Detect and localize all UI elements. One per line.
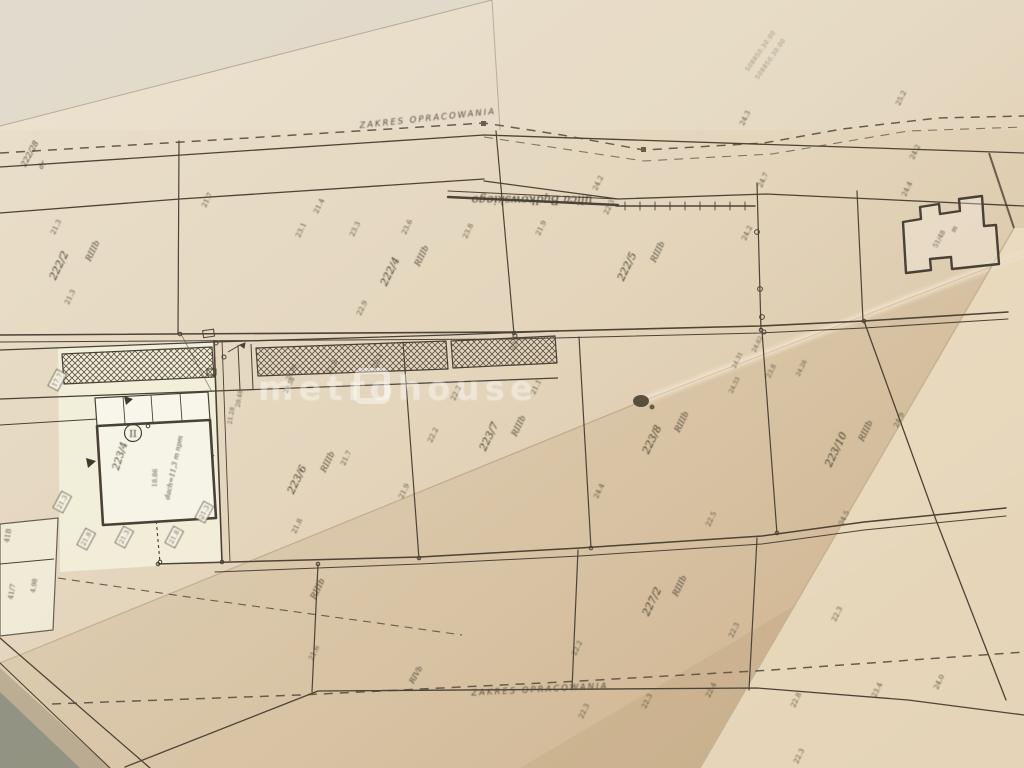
ink-blot (633, 395, 649, 407)
tiny-label: 18.86 (151, 468, 160, 487)
hatched-structure (451, 336, 557, 368)
cadastral-map: ZAKRES OPRACOWANIAZAKRES OPRACOWANIAulic… (0, 0, 1024, 768)
wm-label: metrohouse (258, 369, 538, 409)
map-photo: ZAKRES OPRACOWANIAZAKRES OPRACOWANIAulic… (0, 0, 1024, 768)
circled-label: II (129, 429, 137, 440)
street-label: ulica Bądkowskiego (472, 193, 593, 207)
